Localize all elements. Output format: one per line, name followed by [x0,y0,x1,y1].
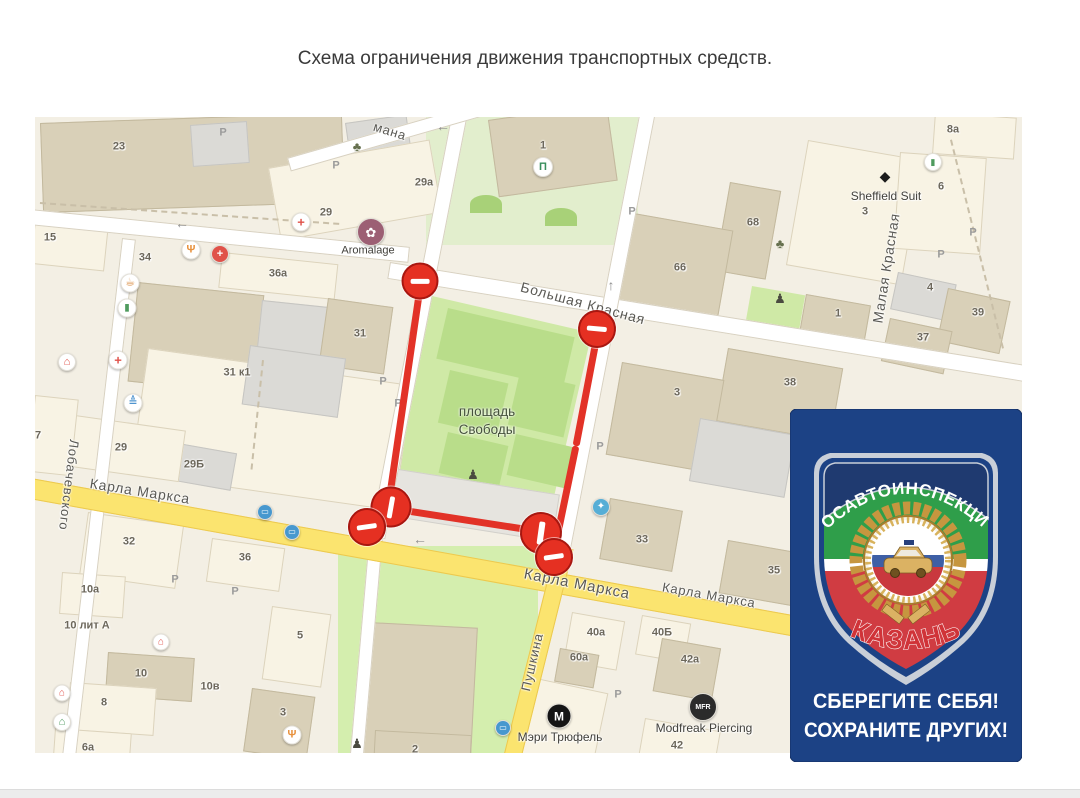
building-block [262,606,332,688]
house-number: 4 [927,283,933,294]
bank-icon[interactable]: Π [533,157,553,177]
house-number: 34 [139,253,151,264]
building-block [206,538,285,592]
house-number: 15 [44,233,56,244]
shield-icon[interactable]: ◆ [877,168,893,184]
poi-label: Мэри Трюфель [518,731,603,743]
house-number: 2 [412,745,418,754]
home-icon[interactable]: ⌂ [153,634,170,651]
brand-m-icon[interactable]: М [547,704,572,729]
house-number: 66 [674,263,686,274]
house-number: 31 к1 [224,368,251,379]
house-number: 42а [681,655,699,666]
cafe-icon[interactable]: ☕ [121,274,140,293]
house-number: 3 [674,388,680,399]
parking-icon: P [614,690,621,701]
monument-icon[interactable]: ♟ [350,736,364,750]
no-entry-bar [410,278,430,283]
traffic-police-badge: ГОСАВТОИНСПЕКЦИЯ [790,409,1022,762]
house-number: 8 [101,698,107,709]
house-number: 39 [972,308,984,319]
no-entry-bar [544,553,565,561]
building-block [932,117,1017,160]
monument-icon[interactable]: ♟ [466,467,480,481]
house-number: 1 [540,141,546,152]
monument-icon[interactable]: ♟ [773,291,787,305]
house-number: 23 [113,142,125,153]
parking-icon: P [628,207,635,218]
park-area [470,195,502,213]
restaurant-icon[interactable]: Ψ [182,241,201,260]
education-icon[interactable]: ≜ [124,394,143,413]
pharmacy-icon[interactable]: + [292,213,311,232]
no-entry-bar [357,523,378,531]
house-number: 32 [123,537,135,548]
house-number: 1 [835,309,841,320]
house-number: 3 [862,207,868,218]
house-number: 40а [587,628,605,639]
building-block [243,688,315,753]
area-label: площадь Свободы [459,403,516,439]
bus-stop-icon[interactable]: ▭ [284,524,300,540]
house-number: 29 [115,443,127,454]
page: Схема ограничения движения транспортных … [0,0,1080,798]
house-number: 6 [938,182,944,193]
park-area [545,208,577,226]
house-number: 8а [947,125,959,136]
home-icon[interactable]: ⌂ [58,353,76,371]
parking-icon: P [937,250,944,261]
bottom-scroll-strip [0,789,1080,798]
house-number: 35 [768,566,780,577]
house-number: 7 [35,431,41,442]
bus-stop-icon[interactable]: ▭ [257,504,273,520]
shop-icon[interactable]: + [211,245,229,263]
poi-label: Aromalage [341,246,394,257]
parking-icon: P [379,377,386,388]
house-number: 36а [269,269,287,280]
house-number: 31 [354,329,366,340]
building-block [373,730,471,753]
home-icon[interactable]: ⌂ [54,685,71,702]
no-entry-bar [587,325,608,332]
house-number: 36 [239,553,251,564]
tree-icon[interactable]: ♣ [773,236,787,250]
fountain-icon[interactable]: ✦ [592,498,610,516]
house-number: 6а [82,743,94,754]
house-number: 37 [917,333,929,344]
one-way-arrow-icon: ← [413,532,427,546]
badge-slogan-line2: СОХРАНИТЕ ДРУГИХ! [804,719,1008,742]
parking-icon: P [332,161,339,172]
house-number: 68 [747,218,759,229]
house-number: 5 [297,631,303,642]
badge-slogan-line1: СБЕРЕГИТЕ СЕБЯ! [813,690,999,713]
house-number: 10 [135,669,147,680]
one-way-arrow-icon: ↑ [608,278,615,292]
bus-stop-icon[interactable]: ▭ [495,720,511,736]
building-block [653,638,721,702]
parking-icon: P [969,228,976,239]
house-number: 42 [671,741,683,752]
pharmacy-icon[interactable]: + [109,351,128,370]
restaurant-icon[interactable]: Ψ [283,726,302,745]
parking-icon: P [219,128,226,139]
brand-mfr-icon[interactable]: MFR [689,693,717,721]
house-number: 40Б [652,628,672,639]
one-way-arrow-icon: ← [436,119,450,133]
parking-icon: P [596,442,603,453]
beauty-icon[interactable]: ✿ [357,218,385,246]
house-number: 10а [81,585,99,596]
hotel-icon[interactable]: ⌂ [53,713,71,731]
store-icon[interactable]: ▮ [118,299,137,318]
no-entry-bar [386,496,396,519]
house-number: 10 лит А [64,621,109,632]
house-number: 29 [320,208,332,219]
house-number: 29Б [184,460,204,471]
page-title: Схема ограничения движения транспортных … [0,48,1070,70]
parking-icon: P [231,587,238,598]
parking-icon: P [171,575,178,586]
house-number: 60а [570,653,588,664]
poi-label: Modfreak Piercing [656,722,753,734]
tree-icon[interactable]: ♣ [350,139,364,153]
poi-label: Sheffield Suit [851,190,922,202]
house-number: 3 [280,708,286,719]
one-way-arrow-icon: ← [175,216,189,230]
house-number: 10в [201,682,220,693]
no-entry-sign-icon [402,263,439,300]
house-number: 33 [636,535,648,546]
grocery-icon[interactable]: ▮ [924,153,942,171]
house-number: 38 [784,378,796,389]
house-number: 29а [415,178,433,189]
